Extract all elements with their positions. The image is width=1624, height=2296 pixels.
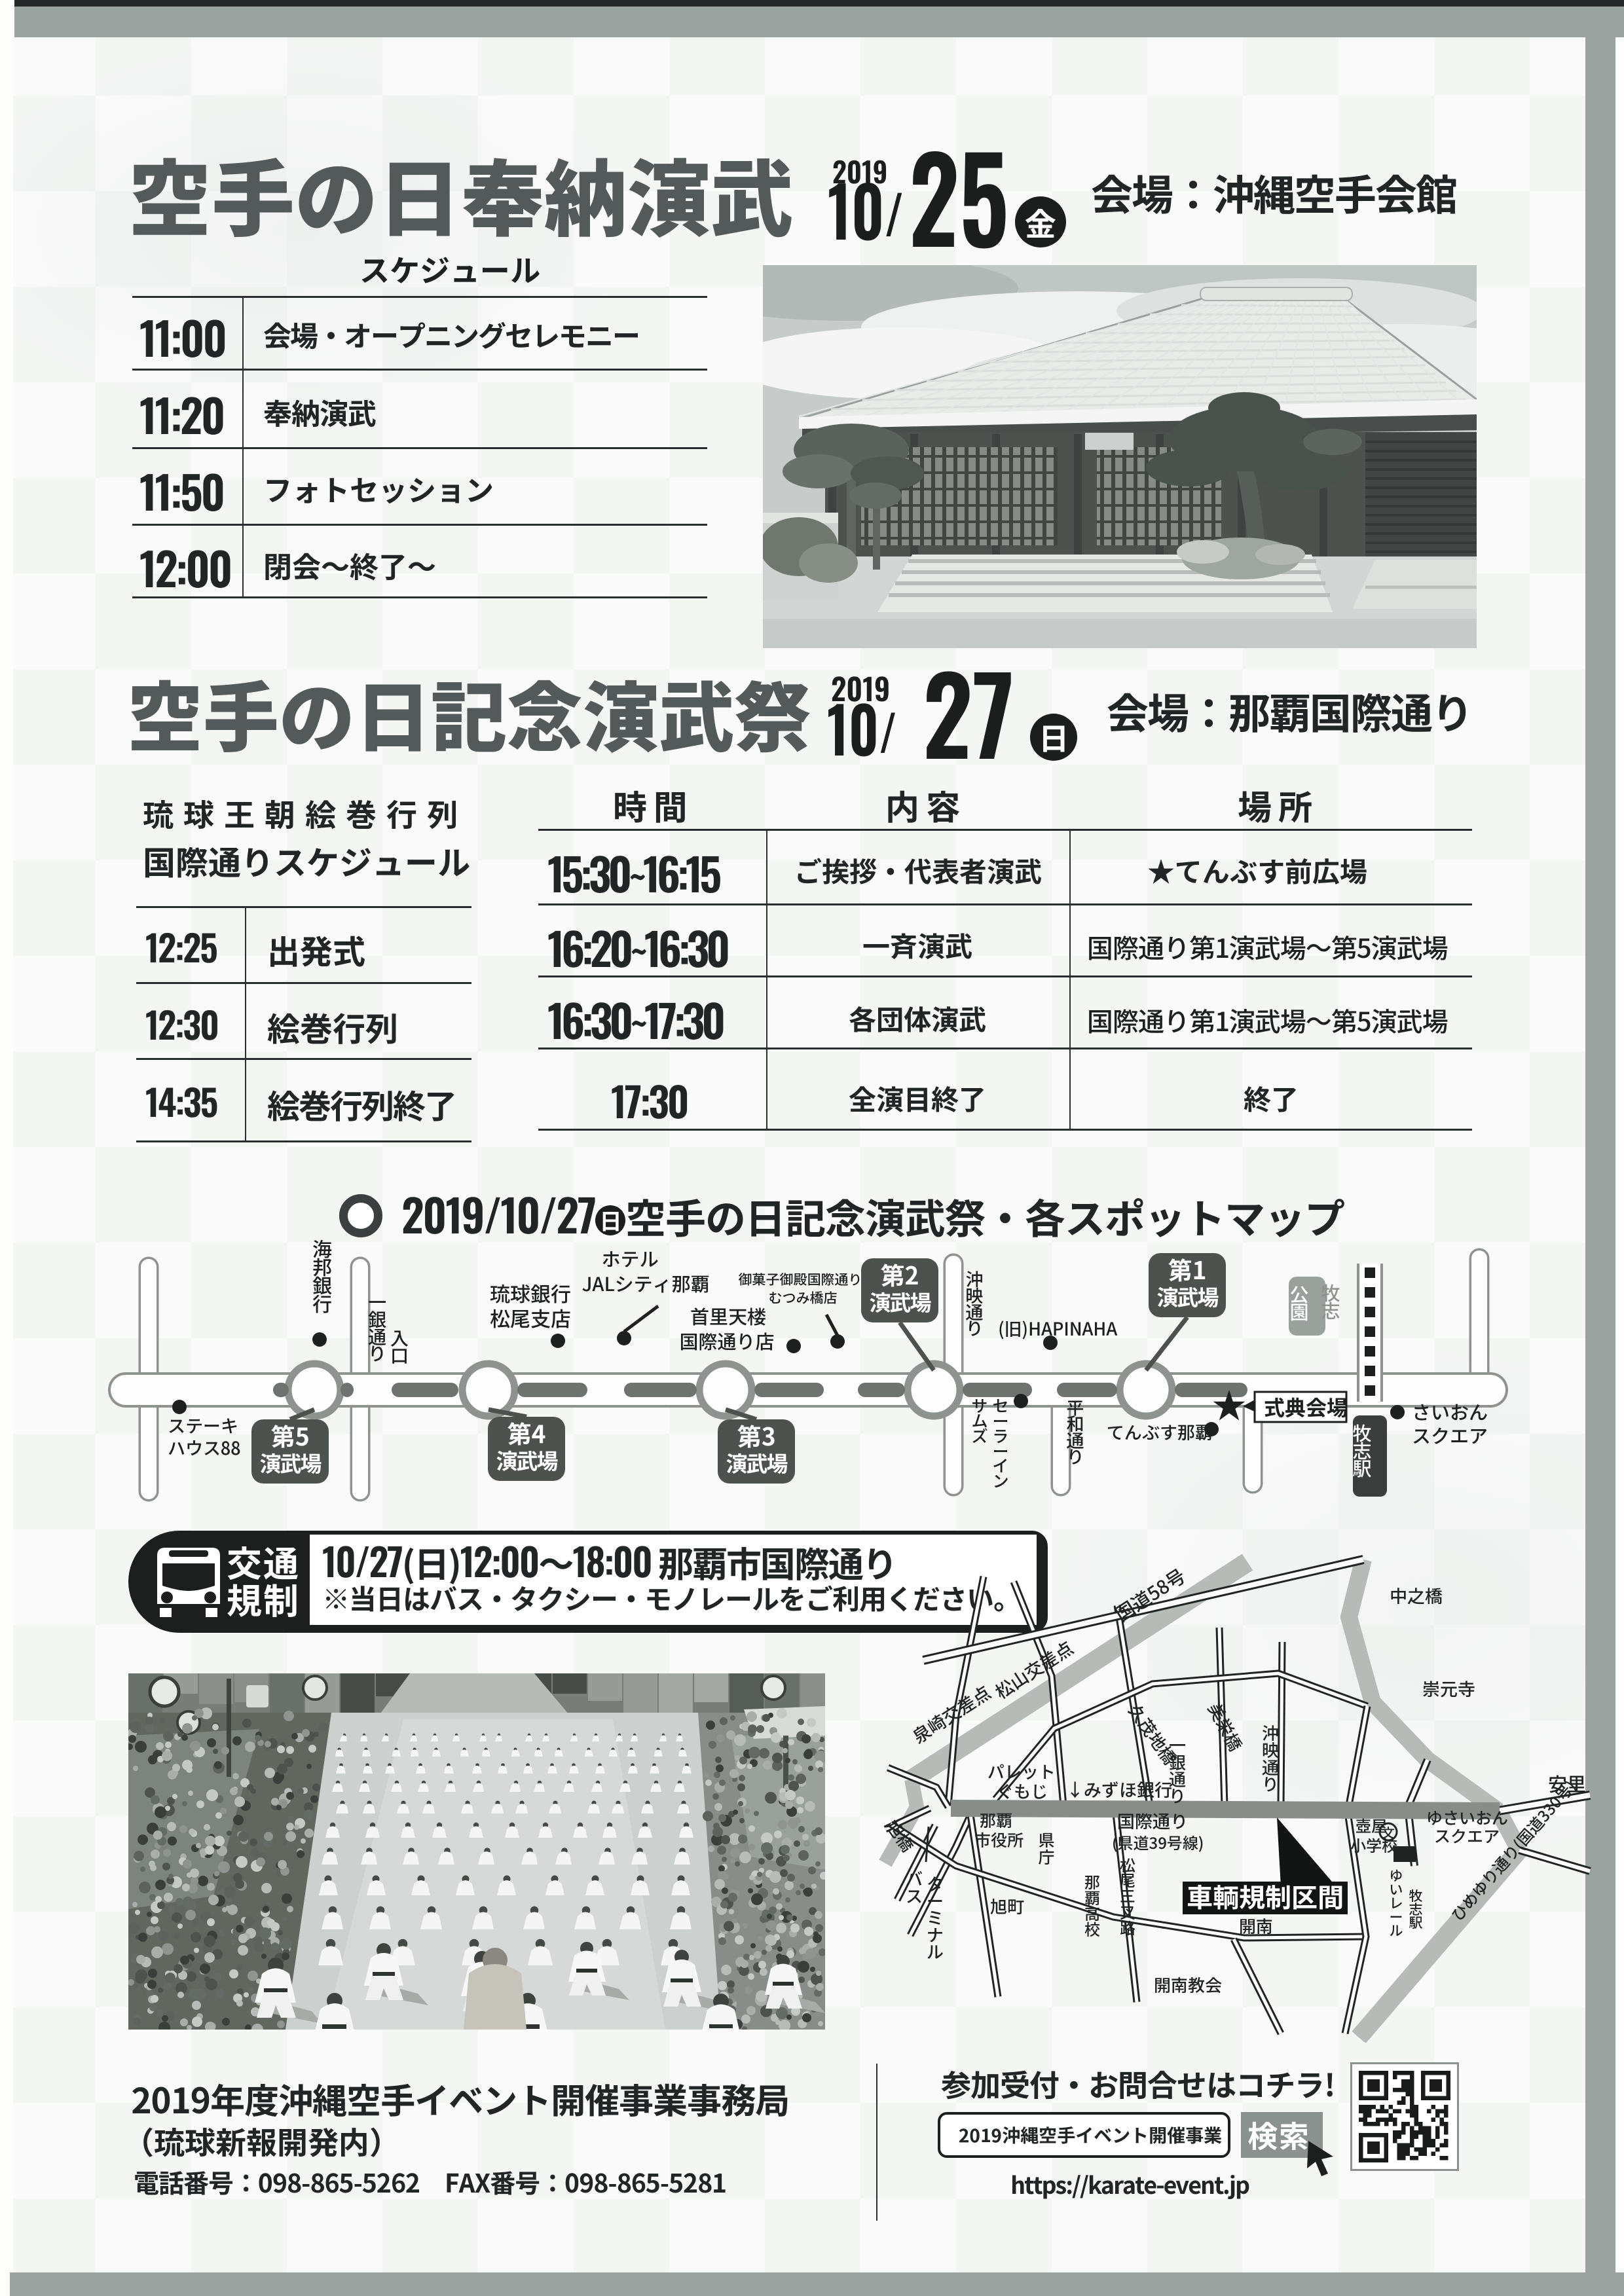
svg-text:中之橋: 中之橋 (1390, 1582, 1443, 1608)
svg-text:御菓子御殿国際通り: 御菓子御殿国際通り (739, 1269, 862, 1289)
svg-text:式典会場: 式典会場 (1264, 1392, 1348, 1422)
svg-text:ぐもじ: ぐもじ (997, 1779, 1048, 1803)
svg-text:那覇高校: 那覇高校 (1081, 1874, 1104, 1937)
svg-text:演武場: 演武場 (260, 1447, 322, 1478)
svg-text:入口: 入口 (386, 1329, 413, 1364)
svg-text:ゆいレール: ゆいレール (1386, 1868, 1406, 1937)
svg-text:スクエア: スクエア (1434, 1824, 1500, 1848)
svg-text:一銀通り: 一銀通り (1166, 1736, 1190, 1804)
svg-text:海邦銀行: 海邦銀行 (308, 1239, 337, 1313)
svg-text:スクエア: スクエア (1412, 1421, 1488, 1449)
svg-text:ターミナル: ターミナル (923, 1875, 948, 1960)
svg-text:↓みずほ銀行: ↓みずほ銀行 (1066, 1776, 1172, 1802)
svg-text:旭町: 旭町 (990, 1894, 1024, 1918)
svg-text:セーラーイン: セーラーイン (989, 1397, 1012, 1487)
svg-text:沖映通り: 沖映通り (1259, 1724, 1283, 1793)
svg-text:公園: 公園 (1285, 1285, 1313, 1321)
svg-text:サムズ: サムズ (968, 1397, 991, 1444)
svg-text:開南: 開南 (1239, 1914, 1273, 1938)
svg-text:首里天楼: 首里天楼 (690, 1302, 766, 1330)
svg-text:平和通り: 平和通り (1063, 1398, 1088, 1465)
svg-text:県庁: 県庁 (1035, 1832, 1058, 1865)
svg-text:開南教会: 開南教会 (1154, 1973, 1222, 1997)
svg-text:牧志: 牧志 (1317, 1283, 1344, 1319)
svg-text:市役所: 市役所 (974, 1828, 1024, 1851)
svg-text:牧志駅: 牧志駅 (1348, 1423, 1376, 1478)
svg-text:演武場: 演武場 (870, 1286, 931, 1317)
svg-text:むつみ橋店: むつみ橋店 (769, 1288, 838, 1307)
svg-text:車輌規制区間: 車輌規制区間 (1187, 1877, 1344, 1915)
svg-text:松尾三叉路: 松尾三叉路 (1116, 1857, 1139, 1936)
svg-text:牧志駅: 牧志駅 (1406, 1888, 1426, 1930)
svg-text:ハウス88: ハウス88 (168, 1434, 241, 1460)
svg-text:演武場: 演武場 (726, 1447, 788, 1478)
svg-text:美栄橋: 美栄橋 (1203, 1698, 1248, 1755)
svg-text:JALシティ那覇: JALシティ那覇 (581, 1269, 709, 1297)
svg-text:(県道39号線): (県道39号線) (1112, 1831, 1204, 1853)
svg-text:沖映通り: 沖映通り (962, 1270, 987, 1336)
svg-text:演武場: 演武場 (1157, 1281, 1219, 1312)
svg-text:文: 文 (1382, 1823, 1395, 1842)
svg-text:(旧)HAPINAHA: (旧)HAPINAHA (998, 1315, 1117, 1341)
svg-text:崇元寺: 崇元寺 (1422, 1675, 1475, 1701)
svg-text:てんぶす那覇: てんぶす那覇 (1107, 1419, 1213, 1444)
svg-text:国際通り店: 国際通り店 (679, 1327, 774, 1355)
svg-text:国際通り: 国際通り (1117, 1808, 1188, 1833)
svg-text:松尾支店: 松尾支店 (490, 1303, 571, 1332)
svg-text:★: ★ (1212, 1379, 1246, 1428)
svg-text:演武場: 演武場 (496, 1444, 558, 1476)
svg-text:ホテル: ホテル (601, 1245, 658, 1272)
